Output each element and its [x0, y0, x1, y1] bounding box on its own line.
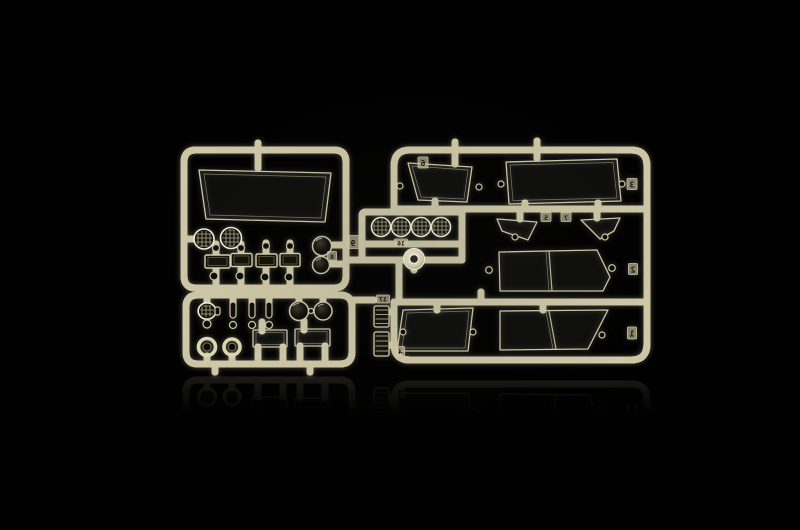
model-sprue-photo: 9 8 16 6 3 5 7 [0, 0, 800, 530]
photo-stage: 9 8 16 6 3 5 7 [0, 0, 800, 530]
surface-reflection [184, 372, 647, 530]
sprue-main [184, 141, 647, 372]
